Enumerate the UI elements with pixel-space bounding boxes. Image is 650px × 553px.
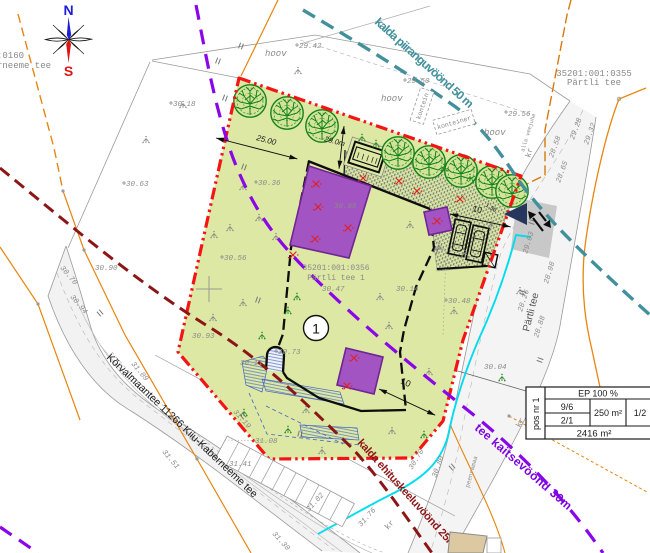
svg-text:30.36: 30.36: [258, 180, 281, 188]
svg-text:S: S: [64, 63, 73, 79]
svg-text:Pärtli tee 1: Pärtli tee 1: [307, 274, 365, 283]
svg-text:1/2: 1/2: [634, 408, 647, 418]
svg-text:31.41: 31.41: [229, 461, 252, 469]
svg-text:hoov: hoov: [381, 94, 403, 104]
svg-text:35201:001:0356: 35201:001:0356: [302, 264, 369, 273]
svg-text:29.50: 29.50: [407, 78, 430, 86]
svg-text:29.42: 29.42: [299, 43, 322, 51]
svg-text:rneeme tee: rneeme tee: [0, 61, 51, 71]
svg-text:250 m²: 250 m²: [594, 408, 622, 418]
svg-text:31.08: 31.08: [255, 438, 278, 446]
svg-text:EP 100 %: EP 100 %: [578, 389, 618, 399]
svg-text:29.56: 29.56: [508, 111, 531, 119]
svg-text:30.93: 30.93: [192, 333, 215, 341]
svg-text:hoov: hoov: [265, 49, 287, 59]
svg-text:30.56: 30.56: [224, 255, 247, 263]
svg-text:2/1: 2/1: [561, 416, 574, 426]
svg-text::0160: :0160: [0, 51, 24, 61]
svg-text:pos nr 1: pos nr 1: [531, 397, 541, 430]
svg-text:30.90: 30.90: [95, 265, 118, 273]
svg-text:30.04: 30.04: [484, 364, 507, 372]
svg-text:30.18: 30.18: [173, 101, 196, 109]
svg-text:9/6: 9/6: [561, 402, 574, 412]
svg-text:30.11: 30.11: [240, 360, 263, 368]
svg-text:30.14: 30.14: [396, 286, 419, 294]
svg-text:N: N: [63, 2, 73, 18]
svg-text:30.73: 30.73: [278, 349, 301, 357]
svg-text:1: 1: [312, 321, 320, 337]
svg-text:30.47: 30.47: [322, 286, 345, 294]
svg-text:30.63: 30.63: [126, 181, 149, 189]
svg-text:Pärtli tee: Pärtli tee: [567, 78, 621, 88]
svg-text:hoov: hoov: [484, 128, 506, 138]
svg-text:30.48: 30.48: [448, 298, 471, 306]
svg-text:30.86: 30.86: [334, 203, 357, 211]
svg-text:2416 m²: 2416 m²: [577, 429, 612, 440]
